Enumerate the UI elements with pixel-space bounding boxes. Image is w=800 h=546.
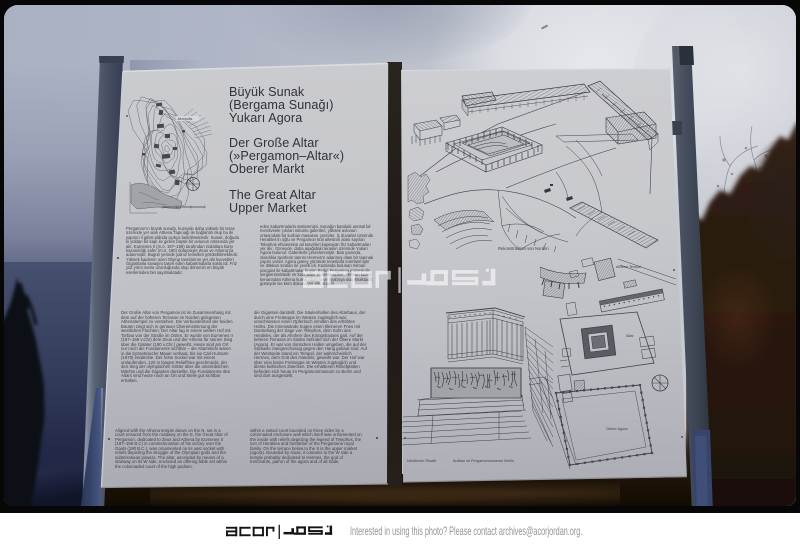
svg-text:Aufbau im Pergamonmuseum Berli: Aufbau im Pergamonmuseum Berlin: [453, 459, 514, 463]
svg-text:Akropolis: Akropolis: [178, 117, 193, 121]
svg-text:Obere Agora: Obere Agora: [606, 427, 628, 431]
svg-text:Altar: Altar: [626, 334, 635, 338]
svg-text:Rekonstruktion von Norden: Rekonstruktion von Norden: [498, 246, 549, 251]
svg-text:Athena Tempel: Athena Tempel: [616, 265, 641, 269]
svg-text:Nördlicher Risalit: Nördlicher Risalit: [407, 459, 437, 463]
